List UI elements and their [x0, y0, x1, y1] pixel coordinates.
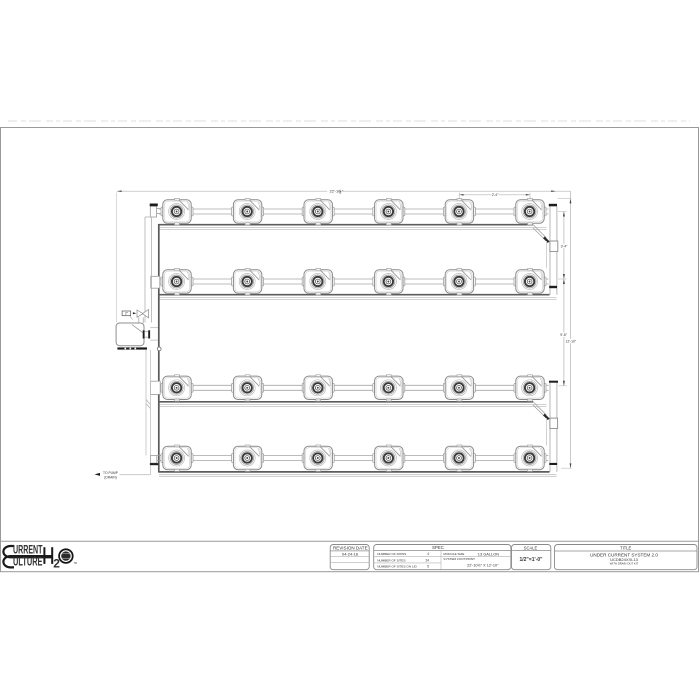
svg-text:WITH DRAIN OUT KIT: WITH DRAIN OUT KIT — [610, 562, 639, 566]
svg-text:(DRAIN): (DRAIN) — [104, 475, 116, 479]
svg-text:REVISION DATE: REVISION DATE — [333, 545, 368, 551]
svg-text:24: 24 — [425, 558, 429, 562]
svg-text:3'-4": 3'-4" — [561, 245, 569, 249]
svg-text:NUMBER OF SITES: NUMBER OF SITES — [377, 558, 405, 562]
svg-text:SCALE: SCALE — [524, 545, 538, 550]
svg-text:NUMBER OF ROWS: NUMBER OF ROWS — [377, 552, 406, 556]
svg-text:ULTURE: ULTURE — [13, 555, 43, 568]
svg-text:22'-10½" X 12'-10": 22'-10½" X 12'-10" — [467, 563, 499, 567]
svg-text:2'-4": 2'-4" — [492, 193, 499, 197]
svg-text:SPEC: SPEC — [432, 545, 444, 550]
svg-text:12'-10": 12'-10" — [566, 339, 577, 343]
svg-text:SYSTEM FOOTPRINT:: SYSTEM FOOTPRINT: — [443, 557, 475, 561]
svg-text:4: 4 — [427, 552, 429, 556]
svg-text:13 GALLON: 13 GALLON — [478, 551, 499, 556]
svg-text:TITLE: TITLE — [620, 545, 631, 550]
svg-text:1/2"=1'-0": 1/2"=1'-0" — [519, 557, 543, 563]
svg-text:MODULE SIZE: MODULE SIZE — [443, 552, 464, 556]
svg-text:5: 5 — [427, 565, 429, 569]
svg-text:04-24-18: 04-24-18 — [342, 551, 359, 556]
svg-text:9'-6": 9'-6" — [560, 333, 568, 337]
svg-text:NUMBER OF SITES ON LID: NUMBER OF SITES ON LID — [377, 565, 417, 569]
svg-text:TM: TM — [73, 562, 76, 565]
